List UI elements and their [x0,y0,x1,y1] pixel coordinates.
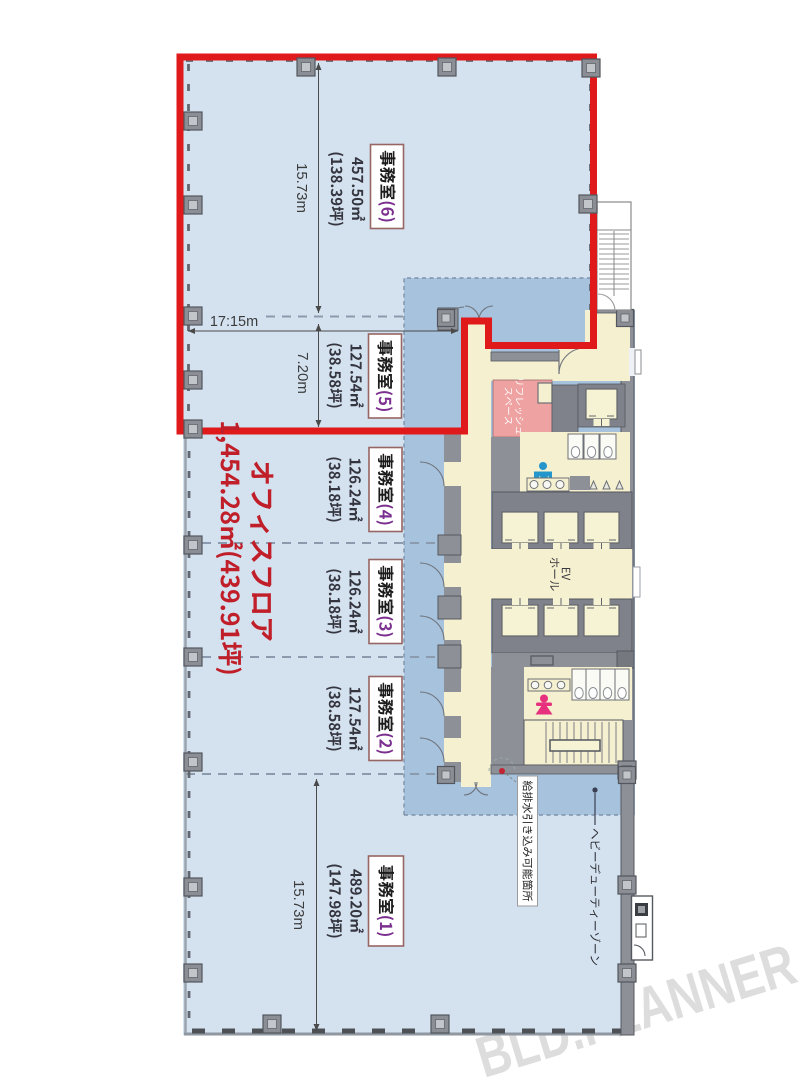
svg-text:7.20m: 7.20m [294,352,311,394]
svg-text:15.73m: 15.73m [293,163,310,213]
svg-text:17:15m: 17:15m [210,314,258,330]
svg-text:15.73m: 15.73m [290,880,307,930]
